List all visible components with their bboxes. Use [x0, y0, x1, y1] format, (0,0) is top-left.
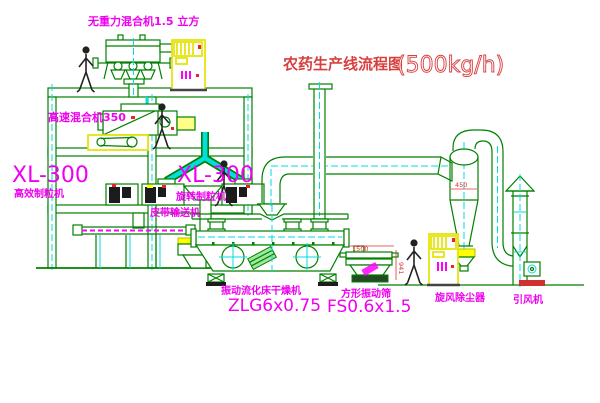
cad-flow-diagram-screenshot: 无重力混合机1.5 立方 高速混合机350 XL-300 高效制粒机 XL-30… — [0, 0, 600, 403]
control-cabinet-lower — [427, 234, 460, 285]
control-cabinet-upper — [170, 40, 207, 90]
diagram-title-capacity: (500kg/h) — [397, 53, 504, 78]
label-gravity-mixer: 无重力混合机1.5 立方 — [87, 14, 199, 28]
vertical-feed-pipe — [309, 82, 332, 219]
label-fan-name: 引风机 — [513, 293, 543, 306]
label-sieve-model: FS0.6x1.5 — [327, 297, 411, 317]
dryer-bellows — [208, 219, 328, 232]
diagram-title: 农药生产线流程图 — [282, 55, 403, 73]
worker-ground — [405, 239, 423, 285]
dryer-spring-feet — [206, 274, 338, 286]
flow-diagram-canvas: 无重力混合机1.5 立方 高速混合机350 XL-300 高效制粒机 XL-30… — [0, 0, 600, 403]
induced-draft-fan — [519, 262, 545, 286]
dim-cyclone-diameter: 450 — [455, 181, 467, 189]
belt-feed-pipe — [133, 213, 144, 228]
fan-base — [519, 280, 545, 286]
dim-sieve-height: 941 — [397, 262, 405, 274]
belt-conveyor-machine — [73, 225, 195, 268]
exhaust-duct — [257, 157, 452, 215]
label-cyclone-name: 旋风除尘器 — [434, 291, 486, 304]
label-high-speed-mixer: 高速混合机350 — [48, 110, 126, 124]
label-granulator-left-name: 高效制粒机 — [14, 187, 64, 200]
label-granulator-left-model: XL-300 — [12, 163, 89, 188]
worker-top-floor — [77, 46, 95, 92]
dim-sieve-width: 1500 — [352, 245, 369, 253]
label-dryer-model: ZLG6x0.75 — [228, 296, 321, 316]
label-belt-conveyor: 皮带输送机 — [149, 206, 200, 219]
label-granulator-right-model: XL-300 — [177, 163, 254, 188]
square-sieve-machine — [340, 246, 398, 282]
label-granulator-right-name: 旋转制粒机 — [175, 190, 226, 203]
